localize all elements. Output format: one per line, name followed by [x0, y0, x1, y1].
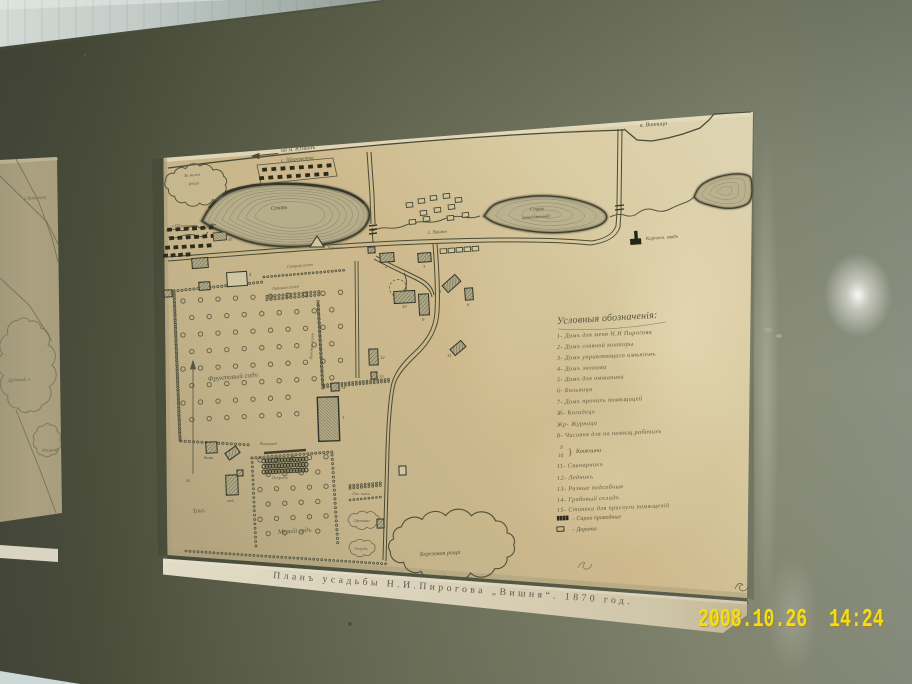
svg-text:13: 13: [379, 374, 384, 379]
svg-text:11: 11: [447, 353, 451, 358]
svg-text:– Дорота: – Дорота: [571, 526, 597, 533]
svg-text:10: 10: [402, 304, 407, 309]
svg-text:Лип. аллея: Лип. аллея: [351, 491, 370, 496]
svg-text:10: 10: [558, 453, 564, 459]
svg-text:}: }: [568, 447, 572, 457]
svg-text:Огородъ: Огородъ: [354, 547, 368, 551]
svg-text:2008.10.26 14:24: 2008.10.26 14:24: [698, 604, 884, 634]
svg-text:9: 9: [560, 445, 563, 451]
svg-text:М.: М.: [227, 237, 233, 242]
svg-text:Курганъ: Курганъ: [327, 245, 344, 250]
svg-text:лед.: лед.: [226, 498, 235, 503]
svg-text:1: 1: [342, 415, 344, 420]
svg-text:Токъ: Токъ: [193, 508, 205, 515]
svg-text:Конюшни: Конюшни: [575, 447, 602, 455]
svg-text:Виноград.: Виноград.: [260, 441, 278, 446]
svg-text:Ставъ: Ставъ: [530, 207, 545, 213]
svg-text:баня: баня: [204, 455, 213, 460]
svg-text:Ставъ: Ставъ: [271, 205, 288, 212]
svg-text:роща: роща: [188, 180, 200, 186]
svg-text:Цветникъ: Цветникъ: [353, 519, 370, 523]
svg-text:14: 14: [341, 385, 346, 390]
svg-text:12: 12: [380, 355, 385, 360]
svg-text:№: №: [185, 478, 190, 483]
